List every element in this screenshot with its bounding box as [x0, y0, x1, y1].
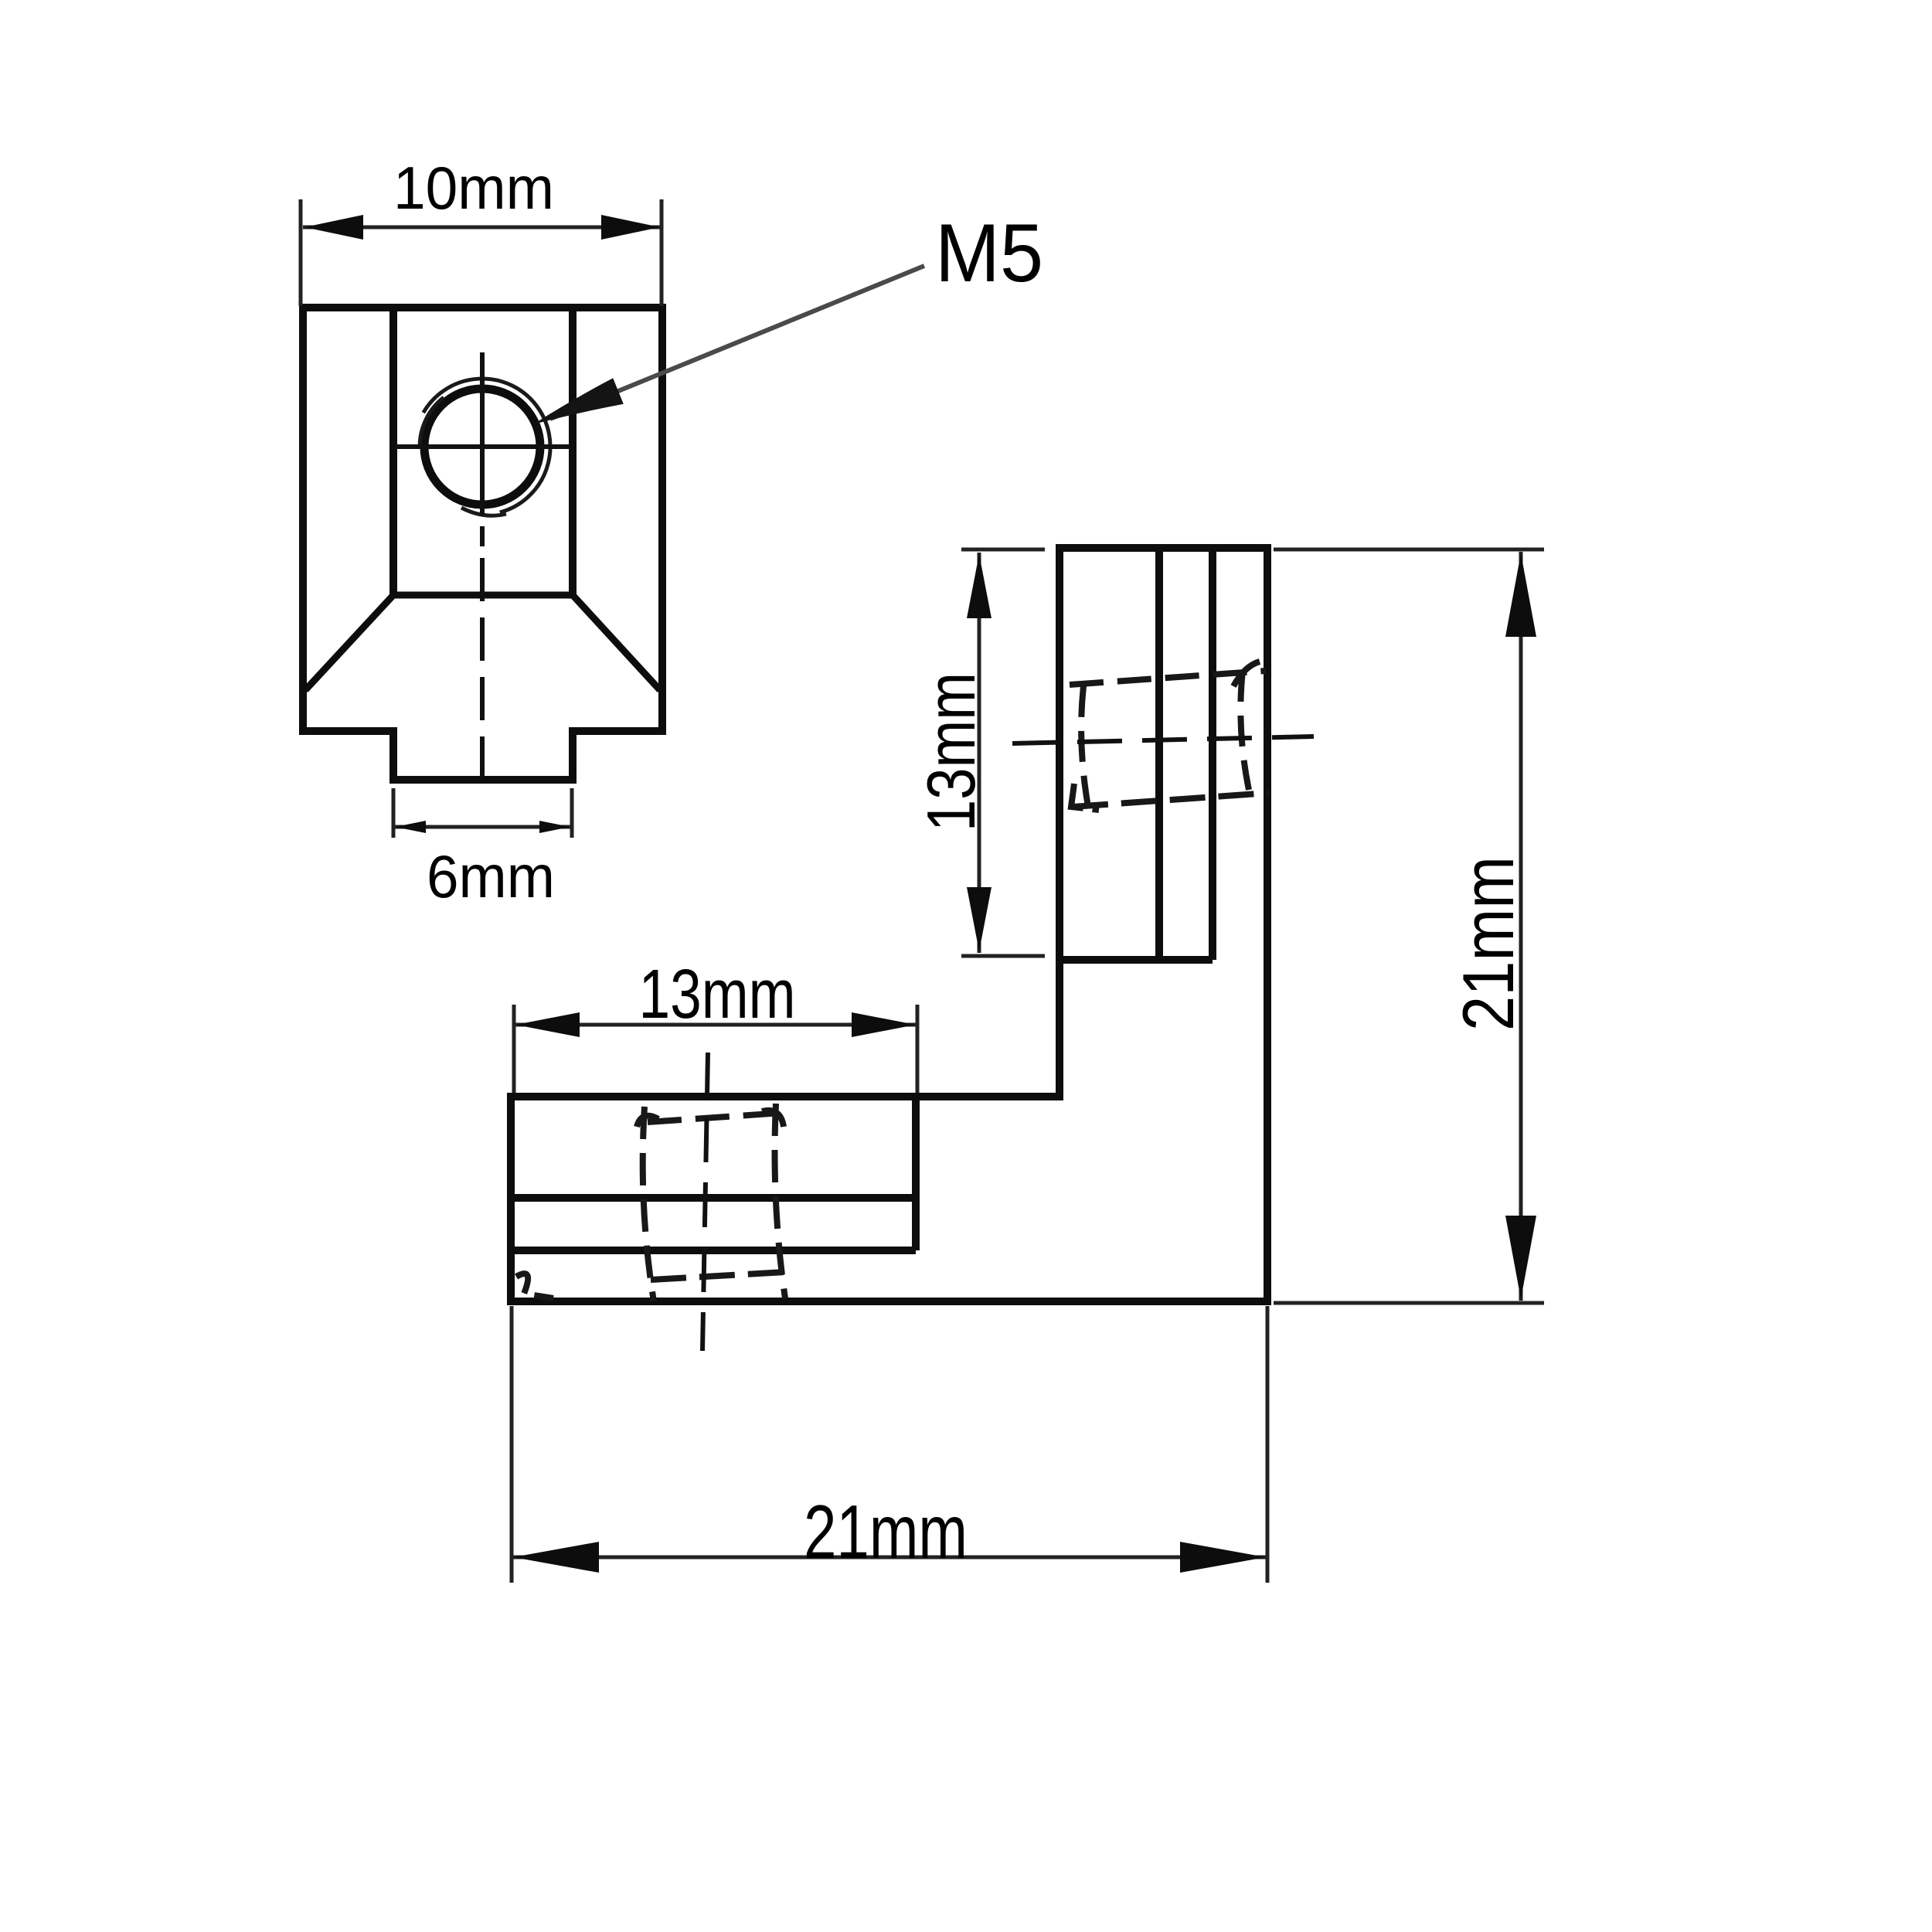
- svg-text:M5: M5: [935, 206, 1043, 299]
- svg-text:10mm: 10mm: [393, 154, 554, 222]
- svg-text:13mm: 13mm: [639, 956, 796, 1033]
- svg-text:13mm: 13mm: [913, 672, 989, 832]
- svg-text:21mm: 21mm: [1447, 856, 1529, 1031]
- svg-text:21mm: 21mm: [804, 1489, 968, 1574]
- svg-text:6mm: 6mm: [427, 842, 555, 910]
